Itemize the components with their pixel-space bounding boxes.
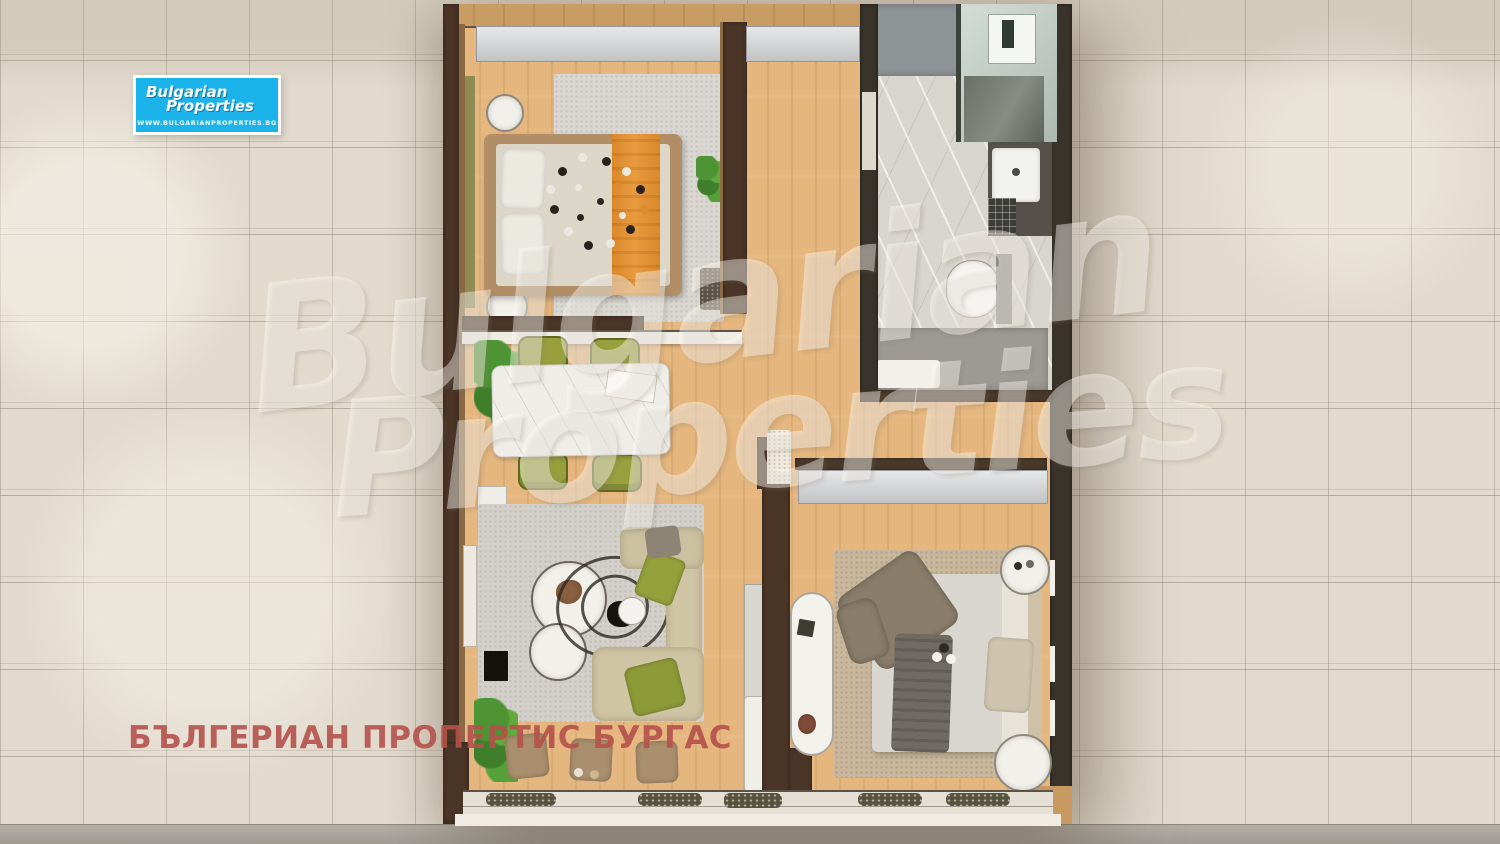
window-shrub-4 — [858, 793, 922, 806]
window-shrub-2 — [638, 793, 702, 806]
bedroom2-desk-plant — [798, 714, 816, 734]
agency-logo: Bulgarian Properties WWW.BULGARIANPROPER… — [133, 75, 281, 135]
living-floor-dots — [574, 768, 583, 777]
bathroom-shampoo-bottle — [1002, 20, 1014, 48]
window-shrub-3 — [724, 793, 782, 808]
bedroom1-pillow-top — [499, 148, 546, 210]
living-bedroom2-divider-wall — [762, 484, 790, 796]
living-radiator — [463, 545, 477, 647]
bedroom1-chandelier-branch — [597, 198, 604, 205]
bedroom2-bed-dots — [932, 652, 942, 662]
bedroom2-window-slits — [1050, 560, 1055, 596]
bathroom-door-opening — [862, 92, 876, 170]
window-shrub-1 — [486, 793, 556, 806]
window-shrub-5 — [946, 793, 1010, 806]
bathroom-mirror-panel — [964, 76, 1044, 142]
bedroom2-pillow — [983, 636, 1034, 713]
logo-website: WWW.BULGARIANPROPERTIES.BG — [136, 119, 278, 127]
bedroom1-nightstand-top — [486, 94, 524, 132]
living-black-speaker — [484, 651, 508, 681]
concrete-ledge — [0, 824, 1500, 844]
bedroom1-wardrobe — [476, 26, 734, 62]
floor-plan-screenshot: Bulgarian Properties БЪЛГЕРИАН ПРОПЕРТИС… — [0, 0, 1500, 844]
living-pendant-bulb — [618, 597, 646, 625]
hallway-wardrobe — [746, 26, 860, 62]
bedroom2-nightstand-bottom — [994, 734, 1052, 792]
logo-line2: Properties — [166, 99, 278, 113]
bedroom2-nightstand-items — [1014, 562, 1022, 570]
agency-caption: БЪЛГЕРИАН ПРОПЕРТИС БУРГАС — [128, 720, 732, 756]
bedroom2-desk-item — [797, 619, 816, 638]
bedroom2-dark-blanket — [891, 633, 953, 753]
bottom-window-outer-band — [455, 814, 1061, 826]
bedroom2-nightstand-top — [1000, 545, 1050, 595]
